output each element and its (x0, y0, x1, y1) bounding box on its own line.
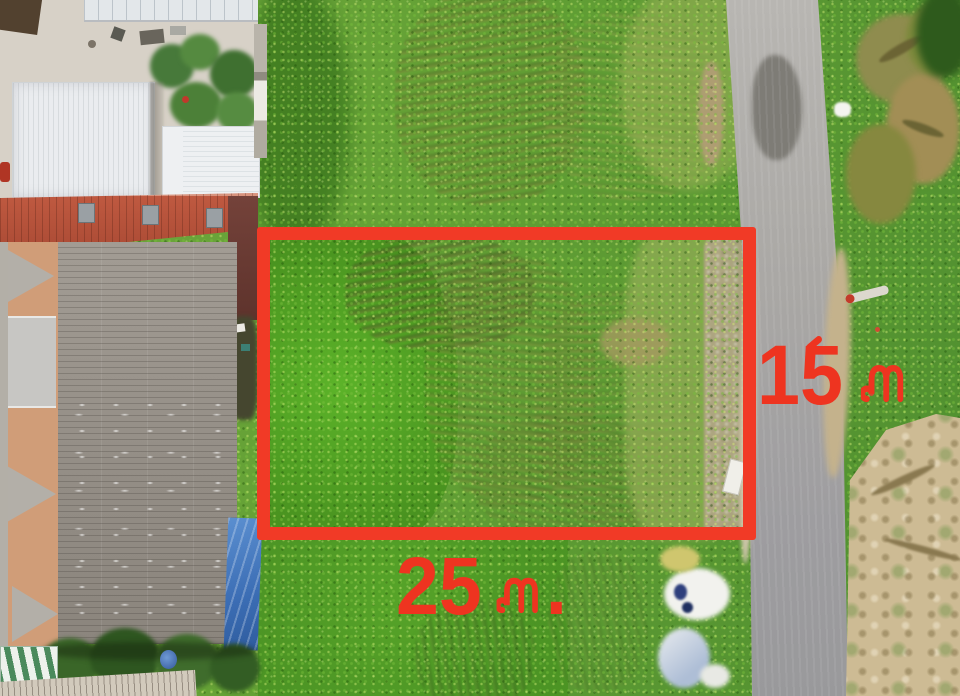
light-gray-wall-patch (0, 316, 56, 408)
mo-ma-glyph (498, 580, 535, 609)
gray-tile-roof (55, 242, 237, 644)
trash-blue-bit (674, 584, 687, 600)
dry-ground-area (828, 396, 960, 696)
garden-trees (150, 34, 258, 140)
dark-roof-corner (0, 0, 42, 35)
tree-shadow (40, 642, 258, 660)
mo-ma-glyph (863, 368, 901, 399)
marker-stick-red-tip (845, 293, 856, 304)
width-dimension-period: . (546, 556, 567, 618)
neighboring-houses (0, 0, 258, 696)
blue-drum (160, 650, 177, 669)
roof-vent (142, 205, 159, 225)
width-dimension-number: 25 (396, 556, 482, 618)
dry-shrub (846, 124, 916, 224)
tan-tile-gable-strip (6, 242, 58, 646)
trash-white-bit (700, 664, 730, 688)
courtyard-object (88, 40, 96, 48)
white-roof-small (162, 126, 260, 198)
white-debris (834, 102, 851, 117)
survey-dot (875, 327, 880, 332)
dry-twig (870, 462, 937, 499)
width-dimension-label: 25 . (396, 556, 567, 618)
boundary-wall-strip (254, 24, 267, 158)
red-flower (182, 96, 189, 103)
marker-stick (845, 285, 890, 304)
white-building-roof (84, 0, 258, 22)
plot-boundary-rectangle (257, 227, 756, 540)
red-car (0, 162, 10, 182)
roof-vent (206, 208, 223, 228)
roof-white-marks (65, 392, 230, 637)
depth-dimension-number: 15 (757, 344, 843, 407)
road-crack-patch (752, 55, 802, 160)
roof-vent (78, 203, 95, 223)
thai-meter-unit-icon (497, 570, 538, 616)
roof-ridges (183, 127, 259, 197)
dry-twig (883, 536, 960, 563)
aerial-photo: 25 . 15 (0, 0, 960, 696)
teal-object (241, 344, 250, 351)
dirt-spot (698, 62, 724, 166)
tree (170, 82, 222, 128)
trash-yellow-bits (660, 546, 700, 572)
left-wall-strip (0, 242, 8, 646)
trash-blue-bit (682, 602, 693, 613)
thai-meter-unit-icon (861, 357, 903, 405)
depth-dimension-label: 15 (757, 344, 904, 407)
white-corrugated-roof (12, 82, 155, 198)
